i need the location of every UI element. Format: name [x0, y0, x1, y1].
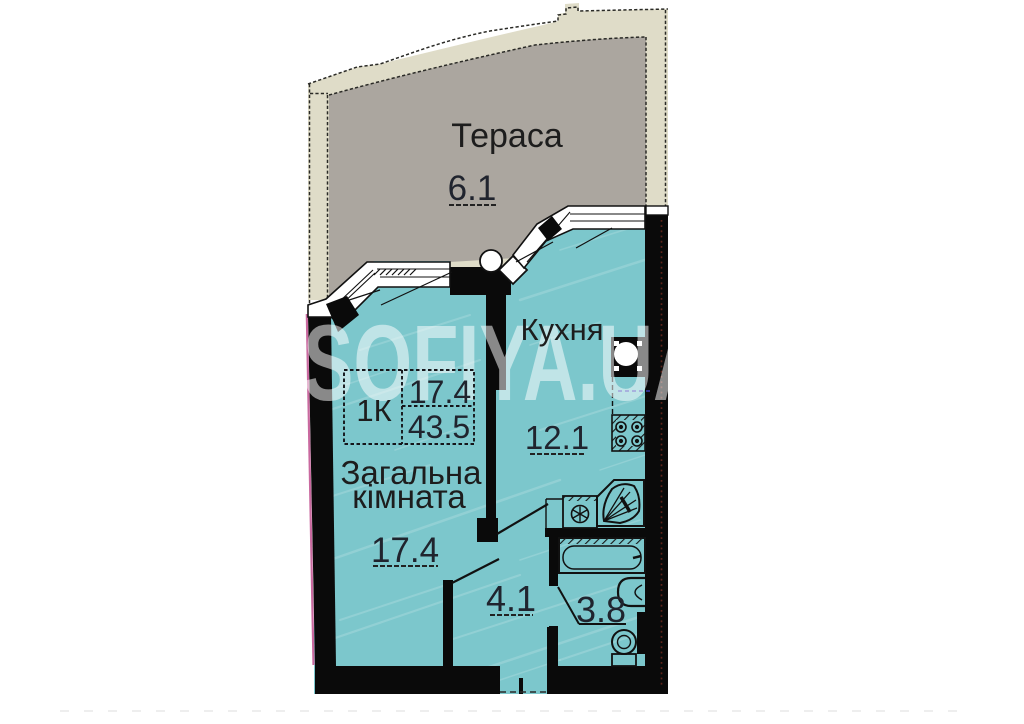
- svg-text:17.4: 17.4: [409, 374, 471, 410]
- svg-text:17.4: 17.4: [371, 531, 439, 570]
- svg-text:Кухня: Кухня: [521, 312, 604, 347]
- svg-text:6.1: 6.1: [448, 169, 497, 208]
- svg-text:Тераса: Тераса: [451, 117, 563, 155]
- svg-text:4.1: 4.1: [486, 578, 536, 619]
- svg-text:3.8: 3.8: [576, 589, 626, 630]
- svg-text:43.5: 43.5: [408, 409, 470, 445]
- svg-text:1К: 1К: [356, 393, 391, 428]
- svg-text:кімната: кімната: [352, 478, 466, 515]
- svg-text:12.1: 12.1: [525, 419, 589, 456]
